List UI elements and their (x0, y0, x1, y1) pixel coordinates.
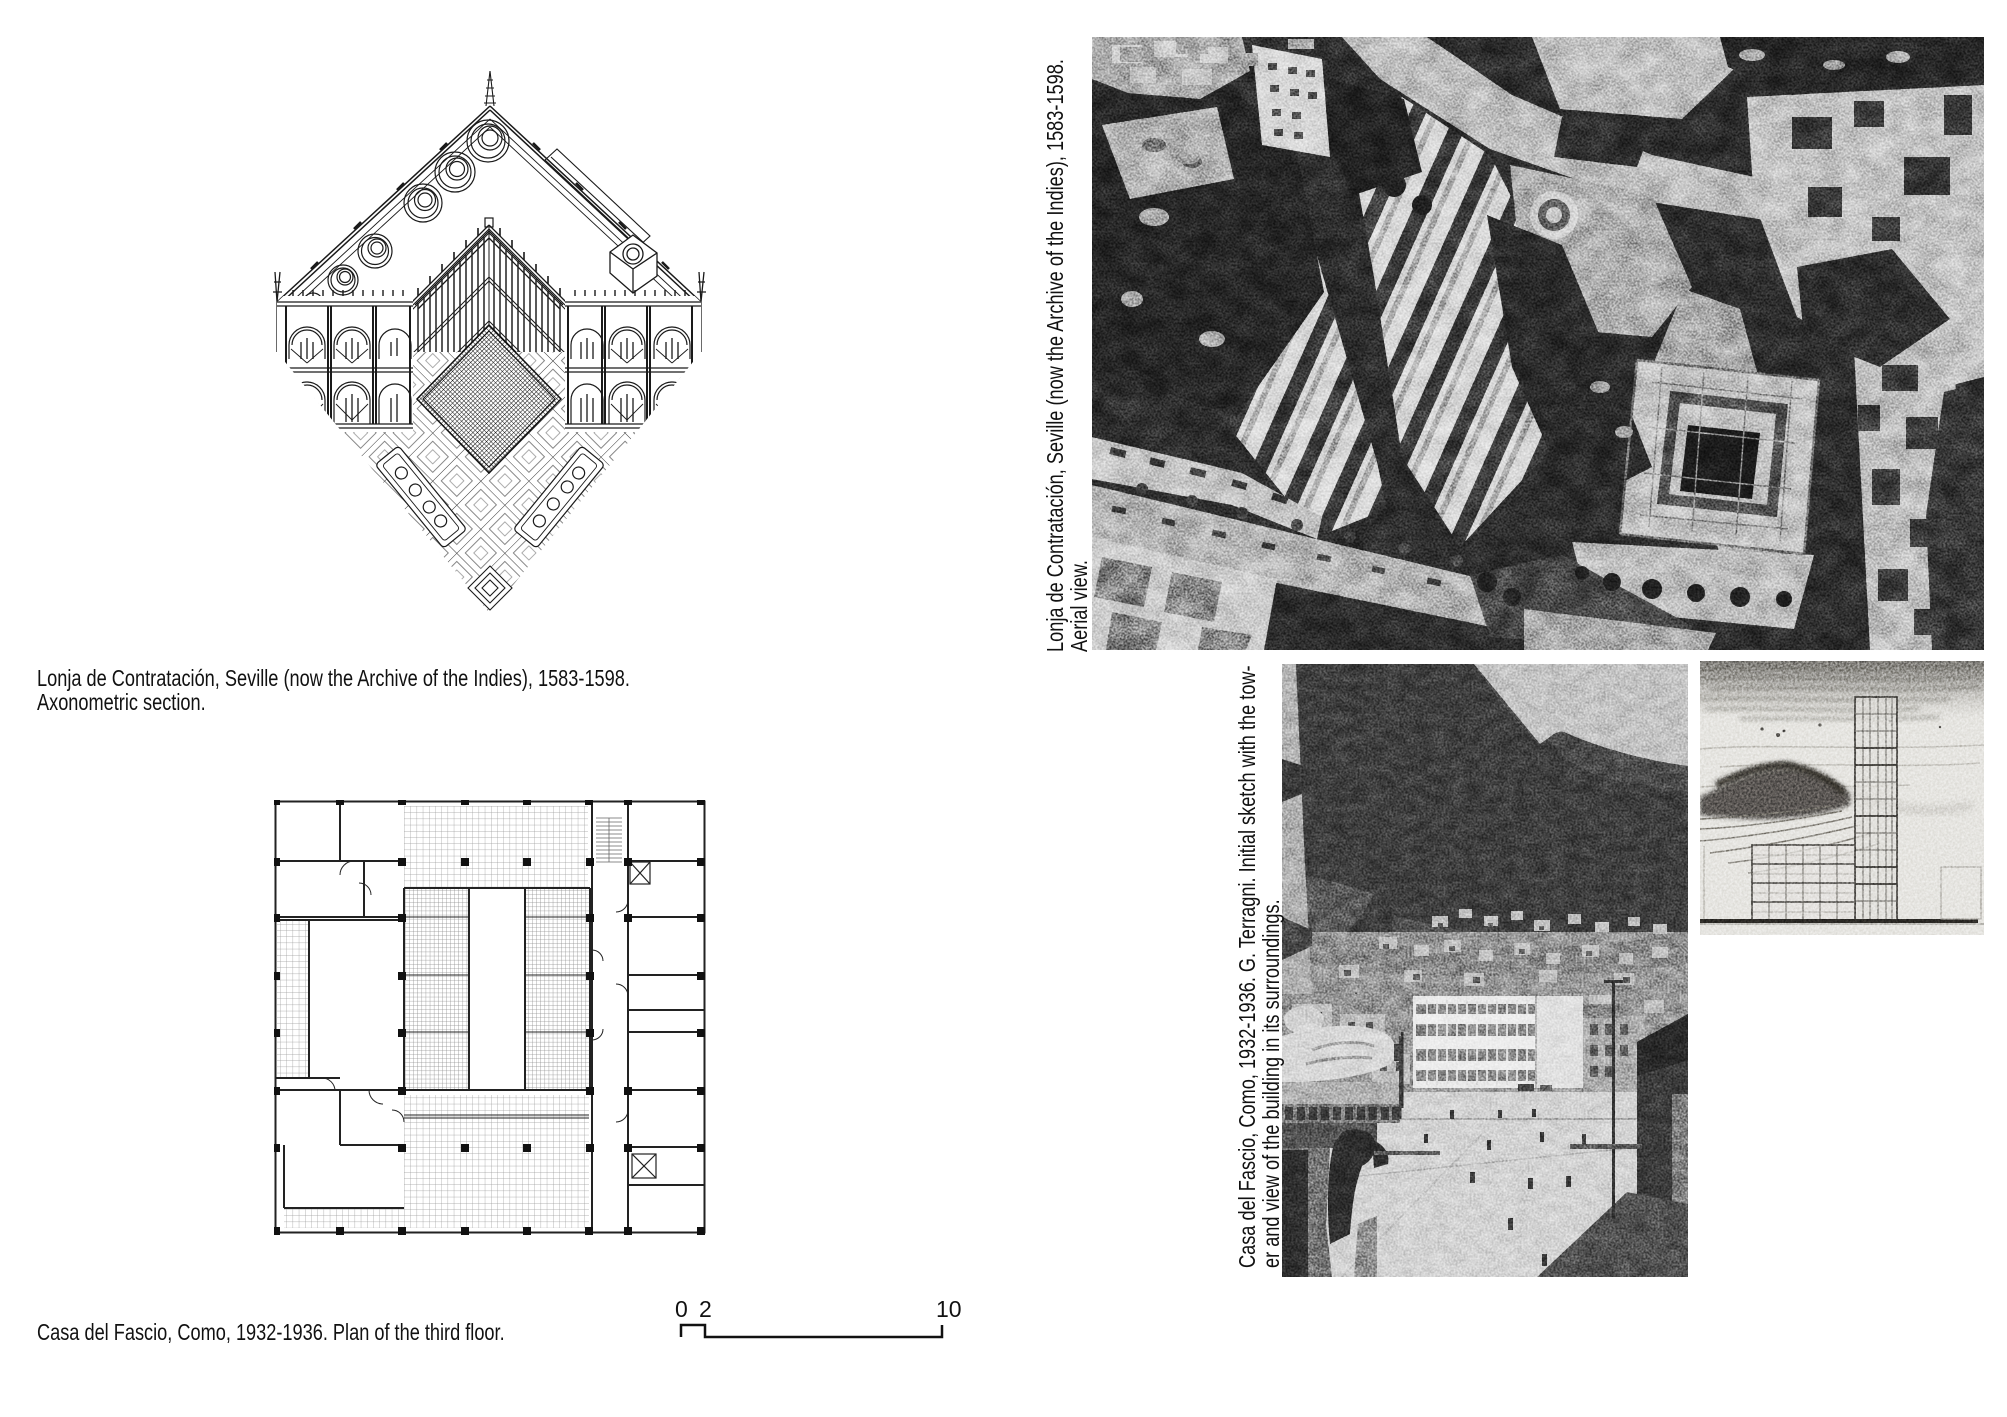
svg-text:2: 2 (699, 1296, 712, 1322)
svg-text:0: 0 (675, 1296, 688, 1322)
svg-text:10: 10 (936, 1296, 962, 1322)
